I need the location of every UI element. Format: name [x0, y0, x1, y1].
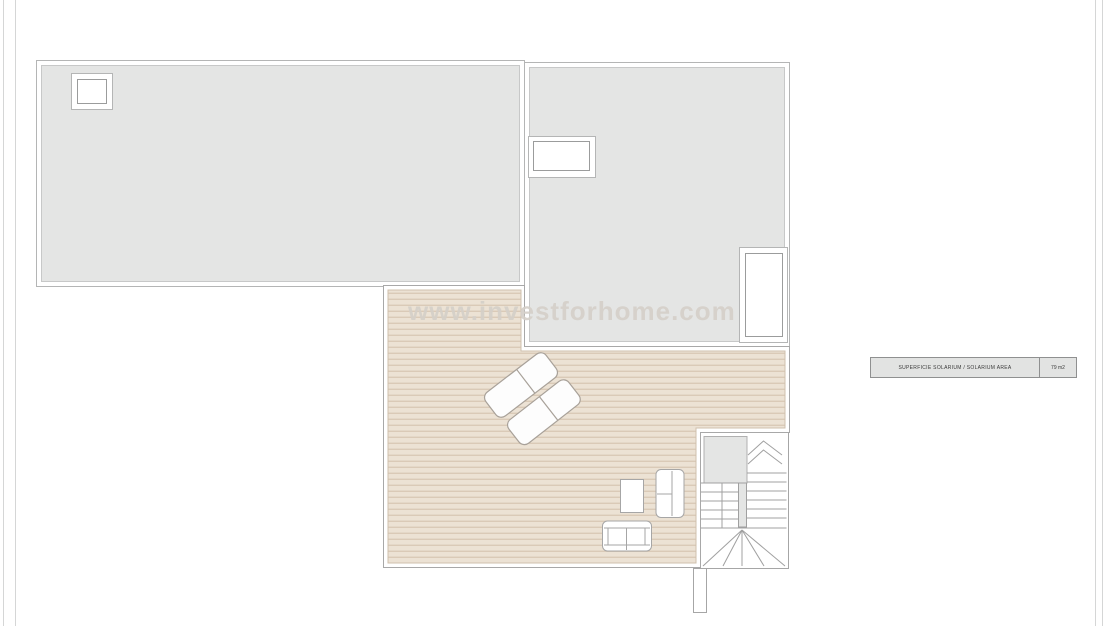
watermark-text: www.investforhome.com — [408, 296, 708, 327]
sofa-horizontal — [603, 521, 652, 551]
stair-landing — [704, 437, 747, 484]
area-label-title: SUPERFICIE SOLARIUM / SOLARIUM AREA — [871, 358, 1039, 377]
staircase — [701, 437, 787, 567]
area-label-box: SUPERFICIE SOLARIUM / SOLARIUM AREA 79 m… — [870, 357, 1077, 378]
deck-surface — [388, 290, 785, 563]
coffee-table — [621, 480, 644, 513]
area-label-value: 79 m2 — [1039, 358, 1076, 377]
sofa-vertical — [656, 470, 684, 518]
floor-plan-page: www.investforhome.com SUPERFICIE SOLARIU… — [0, 0, 1110, 626]
stair-divider-wall — [739, 483, 747, 527]
